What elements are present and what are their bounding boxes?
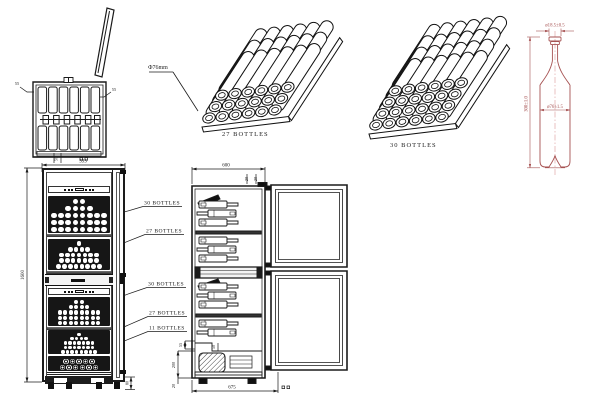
- bottle-end: [91, 321, 95, 325]
- bottle-end: [70, 350, 73, 353]
- front-view-drawing: 595 50 1600 80 30 BOTTLES 27 BOTTLES 30 …: [18, 150, 188, 400]
- bottle-end: [58, 227, 64, 233]
- bottle-end: [80, 337, 83, 340]
- side-bottle-rows-lower: [197, 283, 238, 308]
- bottle-row: [48, 198, 110, 205]
- side-bottle-neck: [227, 203, 238, 206]
- front-width-dim: 595: [79, 160, 87, 165]
- side-bottle-neck: [197, 212, 208, 215]
- bottle-end: [94, 258, 99, 263]
- bottle-end: [80, 365, 85, 370]
- bottle-dimensions: [527, 29, 574, 168]
- bottle-end: [77, 341, 80, 344]
- bottle-end: [80, 310, 84, 314]
- bottle-end: [91, 346, 94, 349]
- bottle-body-dim: ø76±1.5: [547, 105, 563, 110]
- iso-rack-27-label: 27 BOTTLES: [222, 131, 269, 138]
- technical-drawing-sheet: 55 55 Φ76mm 27 BOTTLES 30 BOTTLES: [0, 0, 600, 400]
- side-view-drawing: 600 20 20 55 50 200 20 675: [168, 155, 368, 400]
- bottle-end: [80, 264, 85, 269]
- bottle-end: [51, 220, 57, 226]
- bottle-end: [68, 264, 73, 269]
- bottle-end: [58, 220, 64, 226]
- bottle-end: [87, 206, 93, 212]
- bottle-end: [66, 365, 71, 370]
- bottle-end: [91, 316, 95, 320]
- side-bottle-neck: [227, 221, 238, 224]
- bottle-end: [74, 310, 78, 314]
- bottle-end: [74, 247, 79, 252]
- bottle-end: [69, 305, 73, 309]
- side-bottle-rows-upper: [197, 201, 238, 226]
- bottle-end: [65, 206, 71, 212]
- bottle-end: [84, 350, 87, 353]
- front-base-dim: 80: [125, 381, 130, 385]
- side-bottle-cap: [230, 248, 235, 251]
- side-bottle-cap: [201, 303, 206, 306]
- bottle-row: [48, 321, 110, 326]
- rack-30-lower: [48, 297, 110, 326]
- bottle-end: [94, 253, 99, 258]
- side-bottle-cap: [230, 212, 235, 215]
- bottle-end: [70, 359, 75, 364]
- bottle-end: [63, 359, 68, 364]
- bottle-end: [80, 321, 84, 325]
- side-bottle-neck: [227, 322, 238, 325]
- side-compressor-zone-dim: 200: [171, 362, 176, 368]
- bottle-end: [61, 350, 64, 353]
- section-mark-icon: [282, 386, 290, 389]
- bottle-end: [77, 333, 80, 336]
- bottle-end: [87, 220, 93, 226]
- bottle-end: [59, 253, 64, 258]
- bottle-end: [63, 321, 67, 325]
- bottle-end: [84, 337, 87, 340]
- front-top-dim: 50: [54, 157, 59, 161]
- side-door-lower: [271, 271, 347, 370]
- bottle-end: [74, 321, 78, 325]
- bottle-end: [101, 227, 107, 233]
- bottle-end: [68, 346, 71, 349]
- bottle-end: [58, 321, 62, 325]
- compressor: [199, 353, 225, 372]
- bottle-end: [96, 316, 100, 320]
- side-total-depth-dim: 675: [228, 386, 236, 391]
- side-bottle-neck: [227, 257, 238, 260]
- bottle-end: [77, 241, 82, 246]
- rack-30-upper: [48, 196, 110, 233]
- side-step-dim: 50: [211, 345, 216, 349]
- bottle-end: [89, 350, 92, 353]
- top-view-dim-left: 55: [15, 81, 19, 86]
- bottle-row: [48, 365, 110, 372]
- bottle-end: [59, 258, 64, 263]
- bottle-end: [74, 305, 78, 309]
- rack-27-upper: [48, 239, 110, 270]
- bottle-end: [60, 365, 65, 370]
- side-bottle-cap: [201, 322, 206, 325]
- zone-divider: [45, 274, 113, 286]
- bottle-end: [64, 341, 67, 344]
- bottle-row: [48, 350, 110, 354]
- bottle-end: [80, 213, 86, 219]
- bottle-end: [80, 305, 84, 309]
- bottle-end: [77, 258, 82, 263]
- bottle-end: [86, 346, 89, 349]
- front-cabinet: [42, 168, 125, 382]
- top-view-drawing: 55 55: [10, 5, 145, 165]
- bottle-end: [80, 220, 86, 226]
- side-bottle-cap: [201, 203, 206, 206]
- bottle-end: [97, 264, 102, 269]
- side-door-upper: [271, 185, 347, 267]
- bottle-end: [73, 220, 79, 226]
- bottle-end: [73, 341, 76, 344]
- bottle-end: [75, 337, 78, 340]
- bottle-end: [83, 359, 88, 364]
- bottle-row: [48, 205, 110, 212]
- iso-rack-27: [195, 0, 345, 142]
- bottle-end: [80, 350, 83, 353]
- bottle-end: [63, 310, 67, 314]
- bottle-drawing: ø18.5±0.5 300±1.0 ø76±1.5: [518, 15, 598, 190]
- bottle-end: [75, 350, 78, 353]
- rack-11-bottom: [48, 356, 110, 371]
- bottle-end: [85, 264, 90, 269]
- side-bottle-neck: [197, 331, 208, 334]
- bottle-end: [82, 346, 85, 349]
- bottle-end: [101, 213, 107, 219]
- bottle-end: [85, 310, 89, 314]
- bottle-row: [48, 219, 110, 226]
- lower-door-handle: [120, 276, 124, 284]
- bottle-end: [71, 253, 76, 258]
- side-bottle-rows-upper2: [197, 237, 238, 262]
- bottle-end: [68, 247, 73, 252]
- bottle-end: [51, 213, 57, 219]
- bottle-end: [73, 227, 79, 233]
- bottle-end: [65, 227, 71, 233]
- bottle-end: [65, 213, 71, 219]
- bottle-end: [64, 346, 67, 349]
- bottle-end: [80, 316, 84, 320]
- bottle-end: [86, 365, 91, 370]
- side-door-top-dim-2: 20: [253, 177, 258, 181]
- bottle-end: [85, 305, 89, 309]
- bottle-end: [76, 359, 81, 364]
- bottle-end: [93, 365, 98, 370]
- bottle-end: [87, 213, 93, 219]
- bottle-height-dim: 300±1.0: [525, 95, 530, 111]
- bottle-end: [51, 227, 57, 233]
- top-view-dim-right: 55: [112, 87, 116, 92]
- side-liner-dim: 55: [178, 343, 183, 347]
- side-bottle-neck: [227, 285, 238, 288]
- bottle-end: [58, 310, 62, 314]
- bottle-end: [85, 247, 90, 252]
- side-foot-dim: 20: [171, 384, 176, 388]
- bottle-end: [86, 341, 89, 344]
- rack-27-lower: [48, 330, 110, 354]
- side-bottle-cap: [230, 331, 235, 334]
- bottle-end: [96, 321, 100, 325]
- bottle-end: [56, 264, 61, 269]
- bottle-end: [69, 310, 73, 314]
- bottle-end: [73, 213, 79, 219]
- bottle-end: [80, 227, 86, 233]
- hinge-top: [120, 170, 126, 174]
- bottle-end: [88, 258, 93, 263]
- side-bottle-neck: [197, 294, 208, 297]
- foot: [114, 382, 120, 389]
- bottle-row: [48, 212, 110, 219]
- bottle-end: [85, 321, 89, 325]
- bottle-end: [62, 264, 67, 269]
- plinth: [45, 376, 113, 384]
- bottle-end: [85, 316, 89, 320]
- bottle-end: [101, 220, 107, 226]
- shelf: [47, 234, 111, 237]
- bottle-end: [94, 213, 100, 219]
- bottle-end: [91, 264, 96, 269]
- side-bottle-cap: [201, 221, 206, 224]
- bottle-end: [65, 220, 71, 226]
- bottle-end: [73, 199, 79, 205]
- bottle-end: [68, 341, 71, 344]
- hinge-bottom: [120, 370, 126, 374]
- bottle-end: [80, 300, 84, 304]
- side-depth-dim: 600: [222, 164, 230, 169]
- control-panel-upper: [48, 186, 110, 193]
- bottle-end: [91, 310, 95, 314]
- bottle-end: [73, 365, 78, 370]
- bottle-end: [74, 300, 78, 304]
- iso-rack-30-label: 30 BOTTLES: [390, 142, 437, 149]
- foot: [96, 382, 102, 389]
- bottle-end: [83, 253, 88, 258]
- side-bottle-cap: [201, 257, 206, 260]
- diameter-note-text: Φ76mm: [148, 65, 168, 71]
- bottle-neck-dim: ø18.5±0.5: [545, 24, 565, 29]
- bottle-end: [58, 213, 64, 219]
- bottle-end: [73, 206, 79, 212]
- bottle-end: [83, 258, 88, 263]
- iso-rack-30: [362, 0, 514, 152]
- bottle-end: [88, 253, 93, 258]
- bottle-end: [87, 227, 93, 233]
- bottle-end: [63, 316, 67, 320]
- control-panel-lower: [48, 288, 110, 295]
- bottle-end: [94, 220, 100, 226]
- bottle-row: [48, 226, 110, 233]
- bottle-end: [65, 253, 70, 258]
- side-bottle-neck: [197, 248, 208, 251]
- bottle-end: [77, 253, 82, 258]
- bottle-end: [93, 350, 96, 353]
- side-bottle-neck: [227, 303, 238, 306]
- bottle-end: [74, 264, 79, 269]
- bottle-end: [73, 346, 76, 349]
- bottle-end: [80, 199, 86, 205]
- bottle-end: [69, 321, 73, 325]
- top-view-lines: [20, 8, 114, 157]
- bottle-end: [82, 341, 85, 344]
- bottle-row: [48, 264, 110, 270]
- bottle-end: [80, 247, 85, 252]
- bottle-end: [80, 206, 86, 212]
- bottle-end: [94, 227, 100, 233]
- bottle-end: [77, 346, 80, 349]
- bottle-end: [89, 359, 94, 364]
- bottle-end: [96, 310, 100, 314]
- bottle-end: [69, 316, 73, 320]
- bottle-end: [91, 341, 94, 344]
- side-bottle-cap: [230, 294, 235, 297]
- bottle-end: [66, 350, 69, 353]
- side-door-top-dim-1: 20: [244, 177, 249, 181]
- side-bottle-cap: [201, 239, 206, 242]
- bottle-end: [65, 258, 70, 263]
- bottle-end: [74, 316, 78, 320]
- foot: [66, 382, 72, 389]
- front-height-dim: 1600: [21, 270, 26, 281]
- side-bottle-neck: [227, 239, 238, 242]
- bottle-end: [58, 316, 62, 320]
- side-bottle-cap: [201, 285, 206, 288]
- bottle-end: [70, 337, 73, 340]
- bottle-end: [71, 258, 76, 263]
- door-bottom-frame: [47, 372, 111, 375]
- foot: [48, 382, 54, 389]
